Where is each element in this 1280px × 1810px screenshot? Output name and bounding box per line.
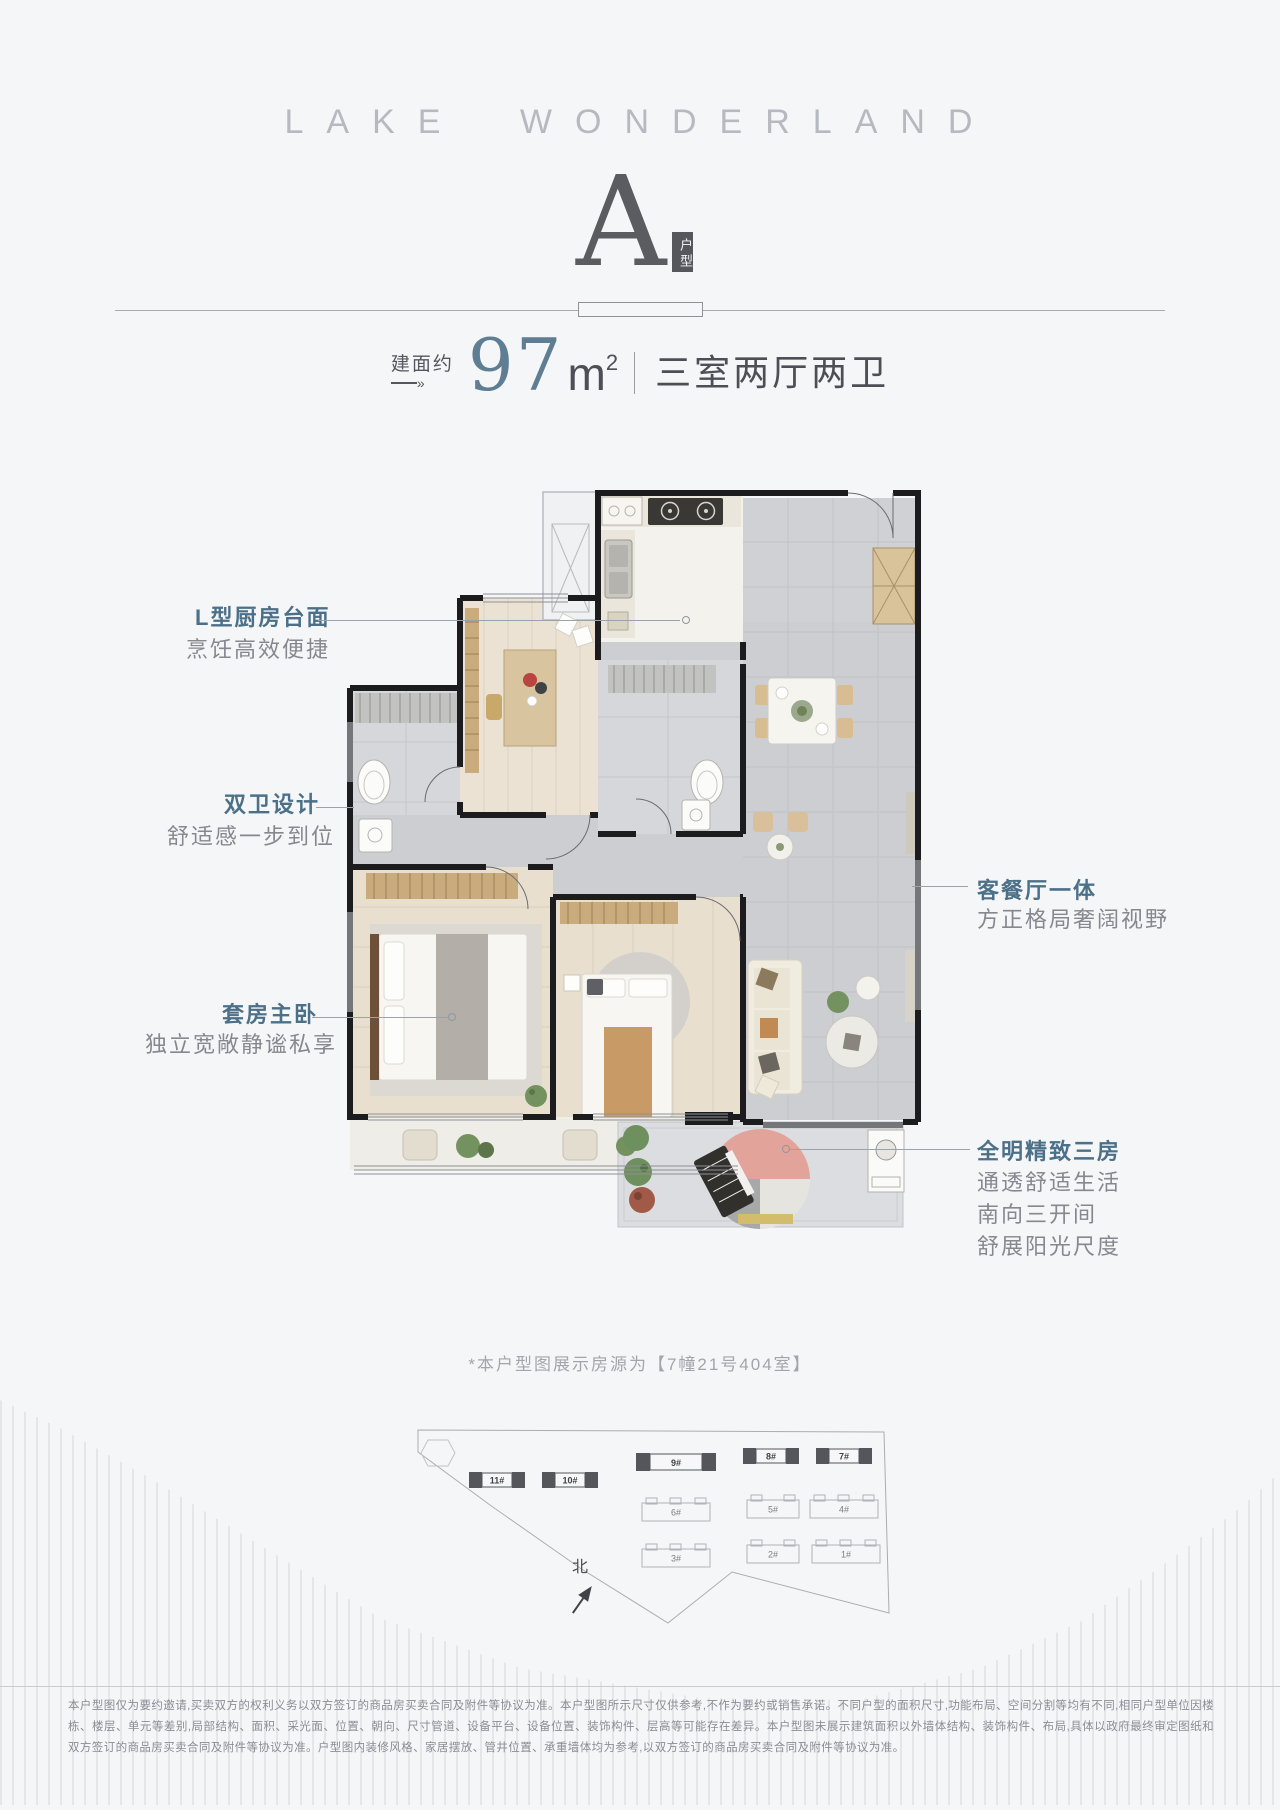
site-plan: 11# 10# 9# 8# 7# 6# <box>340 1420 900 1720</box>
callout-rooms-desc-1: 通透舒适生活 <box>977 1171 1121 1195</box>
disclaimer-text: 本户型图仅为要约邀请,买卖双方的权利义务以双方签订的商品房买卖合同及附件等协议为… <box>68 1696 1214 1759</box>
svg-text:2#: 2# <box>768 1550 778 1560</box>
callout-rooms-desc-3: 舒展阳光尺度 <box>977 1235 1121 1259</box>
callout-baths-desc: 舒适感一步到位 <box>167 825 335 849</box>
svg-text:6#: 6# <box>671 1508 681 1518</box>
floorplan-poster: LAKE WONDERLAND A 户型 建面约 » 97 m2 三室两厅两卫 <box>0 0 1280 1810</box>
building-7: 7# <box>816 1448 872 1464</box>
area-row: 建面约 » 97 m2 三室两厅两卫 <box>0 336 1280 394</box>
svg-text:1#: 1# <box>841 1550 851 1560</box>
building-8: 8# <box>743 1448 799 1464</box>
svg-text:11#: 11# <box>490 1476 505 1486</box>
area-prefix-block: 建面约 » <box>391 349 454 394</box>
floor-plan <box>308 482 922 1262</box>
svg-text:3#: 3# <box>671 1554 681 1564</box>
entry-cabinet <box>873 548 915 624</box>
callout-living-desc: 方正格局奢阔视野 <box>977 908 1169 932</box>
callout-master-line <box>312 1017 448 1018</box>
svg-text:9#: 9# <box>671 1458 681 1468</box>
svg-text:8#: 8# <box>766 1452 776 1462</box>
callout-living-line <box>912 886 968 887</box>
area-divider-bar <box>634 352 635 394</box>
callout-kitchen-dot <box>682 616 690 624</box>
arrow-icon: » <box>391 378 423 388</box>
disclaimer-separator <box>0 1686 1280 1687</box>
callout-kitchen-desc: 烹饪高效便捷 <box>186 638 330 662</box>
callout-living-title: 客餐厅一体 <box>977 879 1097 903</box>
callout-baths-line <box>316 807 354 808</box>
building-9: 9# <box>636 1453 716 1471</box>
callout-master-title: 套房主卧 <box>222 1003 318 1027</box>
callout-baths-title: 双卫设计 <box>224 793 320 817</box>
callout-rooms-desc-2: 南向三开间 <box>977 1203 1097 1227</box>
unit-letter: A <box>576 160 666 285</box>
building-10: 10# <box>542 1472 598 1488</box>
source-footnote: *本户型图展示房源为【7幢21号404室】 <box>0 1350 1280 1375</box>
project-title: LAKE WONDERLAND <box>0 103 1280 142</box>
building-11: 11# <box>469 1472 525 1488</box>
callout-rooms-line <box>790 1149 970 1150</box>
room-configuration: 三室两厅两卫 <box>655 352 889 394</box>
callout-master-dot <box>448 1013 456 1021</box>
callout-kitchen-title: L型厨房台面 <box>195 606 330 630</box>
unit-type-badge: 户型 <box>672 232 693 272</box>
callout-rooms-title: 全明精致三房 <box>977 1140 1121 1164</box>
svg-text:7#: 7# <box>839 1452 849 1462</box>
callout-rooms-dot <box>782 1145 790 1153</box>
area-value: 97 <box>468 336 564 394</box>
svg-text:10#: 10# <box>562 1476 577 1486</box>
svg-text:北: 北 <box>572 1558 588 1576</box>
callout-master-desc: 独立宽敞静谧私享 <box>145 1033 337 1057</box>
svg-text:4#: 4# <box>839 1505 849 1515</box>
area-sup: 2 <box>606 350 618 375</box>
svg-text:5#: 5# <box>768 1505 778 1515</box>
callout-kitchen-line <box>318 620 680 621</box>
area-prefix-label: 建面约 <box>391 349 454 376</box>
header-divider-box <box>578 302 703 317</box>
area-unit: m2 <box>568 343 619 394</box>
